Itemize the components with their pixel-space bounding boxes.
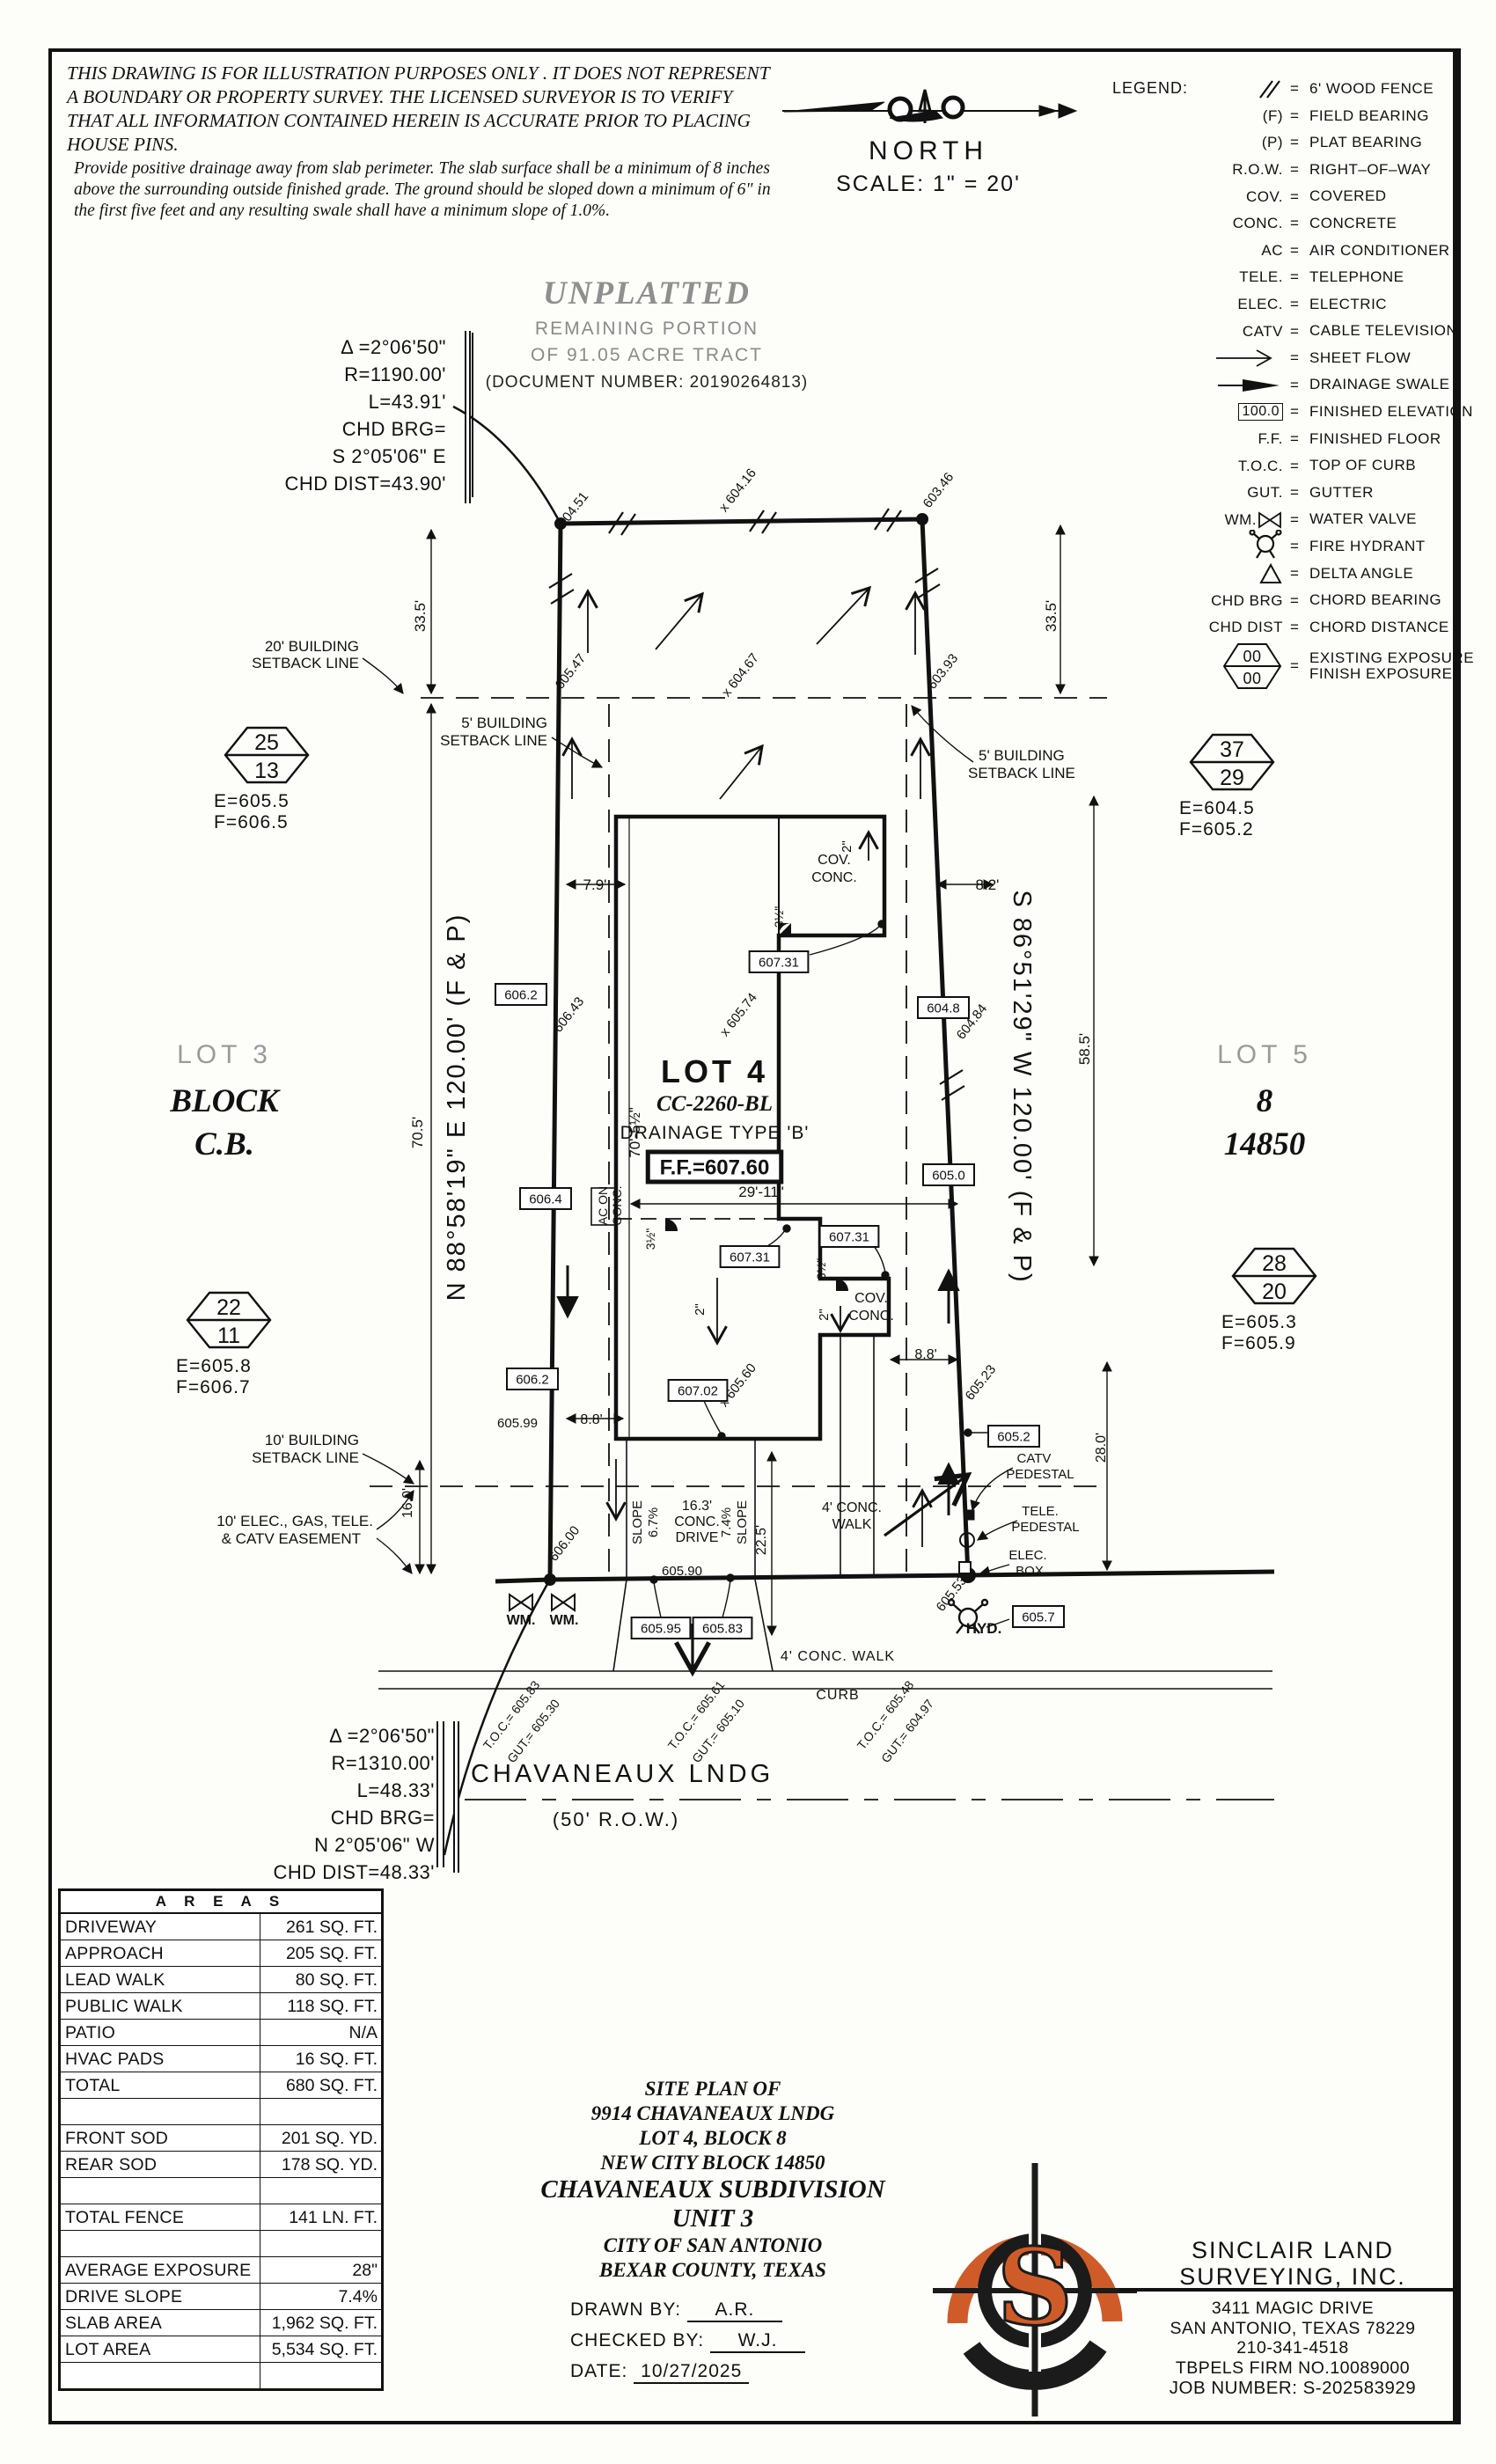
equals-sign: = xyxy=(1290,592,1309,610)
finish-elevation: F=606.5 xyxy=(214,812,328,833)
unplatted-title: UNPLATTED xyxy=(480,275,814,312)
legend-row: ELEC.=ELECTRIC xyxy=(1192,291,1457,319)
plan-label: 28.0' xyxy=(1094,1433,1109,1463)
svg-text:606.2: 606.2 xyxy=(516,1372,549,1387)
equals-sign: = xyxy=(1290,268,1309,286)
plan-label: COV. xyxy=(854,1291,888,1306)
areas-row-label: SLAB AREA xyxy=(61,2310,260,2336)
title-block-line: UNIT 3 xyxy=(519,2204,906,2233)
plan-label: 20' BUILDING xyxy=(265,638,359,655)
legend-label: DRAINAGE SWALE xyxy=(1309,377,1449,393)
sinclair-logo-icon: S xyxy=(933,2161,1137,2418)
drainage-swale-arrow-icon xyxy=(1192,375,1290,396)
unplatted-tract-label: UNPLATTED REMAINING PORTION OF 91.05 ACR… xyxy=(480,275,814,392)
legend-row: AC=AIR CONDITIONER xyxy=(1192,238,1457,265)
legend-row: =DELTA ANGLE xyxy=(1192,561,1457,588)
lead-walk-edges xyxy=(840,1335,874,1574)
plan-label: 3½" xyxy=(814,1258,828,1280)
legend-symbol: CHD BRG xyxy=(1192,592,1290,610)
legend-row: 100.0=FINISHED ELEVATION xyxy=(1192,399,1457,426)
plan-label: 3½" xyxy=(772,906,786,928)
plan-label: SETBACK LINE xyxy=(252,655,359,671)
legend-symbol: (P) xyxy=(1192,134,1290,151)
areas-row-value xyxy=(260,2178,381,2204)
legend-label: FINISHED ELEVATION xyxy=(1309,404,1473,421)
areas-row-value xyxy=(260,2231,381,2256)
legend-label: FINISHED FLOOR xyxy=(1309,431,1441,448)
legend-label: GUTTER xyxy=(1309,485,1374,502)
svg-text:606.2: 606.2 xyxy=(504,987,538,1002)
legend-row: F.F.=FINISHED FLOOR xyxy=(1192,426,1457,453)
areas-row-label: AVERAGE EXPOSURE xyxy=(61,2257,260,2283)
scale-label: SCALE: 1" = 20' xyxy=(774,172,1082,197)
plan-label: 7.9' xyxy=(583,876,607,893)
areas-row-label: LEAD WALK xyxy=(61,1967,260,1992)
plan-label: BOX xyxy=(1016,1564,1044,1579)
plan-label: 2" xyxy=(693,1303,708,1316)
legend-label: CABLE TELEVISION xyxy=(1309,323,1457,340)
legend-label: WATER VALVE xyxy=(1309,511,1417,528)
areas-row-value: 7.4% xyxy=(260,2284,381,2309)
svg-text:605.7: 605.7 xyxy=(1022,1610,1055,1624)
legend-row: =FIRE HYDRANT xyxy=(1192,533,1457,561)
areas-row-label: PATIO xyxy=(61,2020,260,2045)
svg-text:29: 29 xyxy=(1220,766,1244,790)
svg-text:28: 28 xyxy=(1262,1251,1287,1276)
areas-table: A R E A S DRIVEWAY261 SQ. FT.APPROACH205… xyxy=(58,1888,384,2391)
plan-label: SLOPE xyxy=(735,1500,750,1544)
lot-boundary xyxy=(550,519,968,1580)
plan-label: WALK xyxy=(832,1517,872,1532)
unplatted-document-number: (DOCUMENT NUMBER: 20190264813) xyxy=(480,373,814,392)
curve-data-line: L=43.91' xyxy=(260,391,446,418)
existing-elevation: E=605.8 xyxy=(176,1356,290,1377)
equals-sign: = xyxy=(1290,403,1309,421)
legend-label: ELECTRIC xyxy=(1309,297,1387,313)
equals-sign: = xyxy=(1290,377,1309,394)
finished-elevation-box: 607.02 xyxy=(669,1380,728,1401)
equals-sign: = xyxy=(1290,430,1309,448)
legend-symbol: R.O.W. xyxy=(1192,161,1290,179)
unplatted-line2: REMAINING PORTION xyxy=(480,319,814,340)
plan-label: 603.46 xyxy=(920,470,957,511)
areas-table-row: APPROACH205 SQ. FT. xyxy=(61,1940,381,1967)
disclaimer-paragraph-1: THIS DRAWING IS FOR ILLUSTRATION PURPOSE… xyxy=(67,62,771,157)
curve-data-line: R=1190.00' xyxy=(260,363,446,391)
areas-table-row xyxy=(61,2178,381,2204)
plan-label: 4' CONC. WALK xyxy=(781,1649,895,1664)
curve-data-line: S 2°05'06" E xyxy=(260,445,446,473)
areas-row-label xyxy=(61,2231,260,2256)
finished-elevation-box: 607.31 xyxy=(721,1246,780,1267)
street-label: CHAVANEAUX LNDG (50' R.O.W.) xyxy=(471,1760,761,1831)
plan-label: CONC. xyxy=(848,1309,894,1324)
areas-row-value: 28" xyxy=(260,2257,381,2283)
plan-label: 5' BUILDING xyxy=(461,715,547,731)
curve-data-line: Δ =2°06'50" xyxy=(248,1725,435,1752)
plan-label: PEDESTAL xyxy=(1006,1467,1074,1482)
legend-label: 6' WOOD FENCE xyxy=(1309,81,1434,98)
logo-letter-s: S xyxy=(997,2226,1074,2350)
curve-data-line: L=48.33' xyxy=(248,1779,435,1807)
title-block-line: BEXAR COUNTY, TEXAS xyxy=(519,2258,906,2283)
curve-data-bottom: Δ =2°06'50"R=1310.00'L=48.33'CHD BRG=N 2… xyxy=(248,1725,435,1888)
svg-text:607.31: 607.31 xyxy=(829,1229,869,1244)
legend-label: EXISTING EXPOSUREFINISH EXPOSURE xyxy=(1309,650,1474,683)
areas-row-value: N/A xyxy=(260,2020,381,2045)
plan-label: 33.5' xyxy=(412,600,429,632)
plan-label: SETBACK LINE xyxy=(252,1449,359,1466)
plan-label: CURB xyxy=(816,1688,859,1703)
legend-label: TOP OF CURB xyxy=(1309,458,1416,474)
exposure-hexagon-icon: 2820 xyxy=(1228,1244,1320,1308)
areas-row-value: 178 SQ. YD. xyxy=(260,2152,381,2177)
plan-label: LOT 4 xyxy=(661,1053,768,1089)
legend-symbol: CONC. xyxy=(1192,215,1290,232)
match-line xyxy=(465,331,471,503)
legend-label: FIELD BEARING xyxy=(1309,108,1429,125)
sheet-flow-arrow-icon xyxy=(1192,348,1290,369)
areas-table-row: PATION/A xyxy=(61,2020,381,2046)
equals-sign: = xyxy=(1290,107,1309,125)
legend-label: SHEET FLOW xyxy=(1309,350,1411,367)
svg-text:20: 20 xyxy=(1262,1280,1287,1304)
legend-row: CHD DIST=CHORD DISTANCE xyxy=(1192,614,1457,642)
finished-elevation-box: 607.31 xyxy=(820,1226,879,1247)
svg-text:605.0: 605.0 xyxy=(932,1168,965,1183)
areas-row-value: 1,962 SQ. FT. xyxy=(260,2310,381,2336)
areas-row-label: REAR SOD xyxy=(61,2152,260,2177)
plan-label: 7.4% xyxy=(719,1507,734,1537)
company-name-line2: SURVEYING, INC. xyxy=(1131,2263,1455,2290)
areas-row-label: FRONT SOD xyxy=(61,2125,260,2151)
plan-annotations: 20' BUILDINGSETBACK LINE5' BUILDINGSETBA… xyxy=(216,466,1109,1765)
finished-elevation-box: 607.31 xyxy=(750,951,809,972)
company-address-line2: SAN ANTONIO, TEXAS 78229 xyxy=(1131,2319,1455,2339)
plan-label: x 604.67 xyxy=(719,650,762,700)
plan-label: 16.3' xyxy=(682,1499,712,1514)
areas-row-value xyxy=(260,2363,381,2388)
svg-text:607.31: 607.31 xyxy=(759,955,799,970)
plan-label: WM. xyxy=(507,1613,536,1628)
areas-row-value: 118 SQ. FT. xyxy=(260,1993,381,2019)
areas-row-label xyxy=(61,2178,260,2204)
plan-label: 22.5' xyxy=(754,1525,769,1555)
legend-row: TELE.=TELEPHONE xyxy=(1192,264,1457,291)
plan-label: COV. xyxy=(818,853,851,868)
plan-label: 29'-11" xyxy=(738,1184,784,1200)
areas-table-title: A R E A S xyxy=(61,1891,381,1914)
areas-row-label: TOTAL FENCE xyxy=(61,2204,260,2230)
legend-symbol: CATV xyxy=(1192,323,1290,341)
legend-row: R.O.W.=RIGHT–OF–WAY xyxy=(1192,157,1457,184)
exposure-marker: 2820E=605.3F=605.9 xyxy=(1213,1244,1336,1354)
title-block-line: CHAVANEAUX SUBDIVISION xyxy=(519,2175,906,2204)
plan-label: SETBACK LINE xyxy=(968,765,1075,781)
areas-table-row xyxy=(61,2099,381,2125)
areas-table-row: SLAB AREA1,962 SQ. FT. xyxy=(61,2310,381,2336)
plan-label: 58.5' xyxy=(1076,1033,1093,1065)
equals-sign: = xyxy=(1290,134,1309,151)
plan-label: CONC. xyxy=(610,1185,624,1225)
areas-row-value: 205 SQ. FT. xyxy=(260,1940,381,1966)
legend-row: (P)=PLAT BEARING xyxy=(1192,129,1457,157)
water-valve-icon: WM. xyxy=(1192,510,1290,530)
curve-data-line: CHD DIST=43.90' xyxy=(260,473,446,500)
finished-elevation-box-icon: 100.0 xyxy=(1192,403,1290,421)
areas-table-row: TOTAL FENCE141 LN. FT. xyxy=(61,2204,381,2231)
legend-row: CONC.=CONCRETE xyxy=(1192,210,1457,238)
legend-row: GUT.=GUTTER xyxy=(1192,480,1457,507)
curve-data-line: Δ =2°06'50" xyxy=(260,336,446,363)
company-name-line1: SINCLAIR LAND xyxy=(1131,2237,1455,2263)
svg-text:00: 00 xyxy=(1243,648,1261,665)
svg-text:607.31: 607.31 xyxy=(730,1250,770,1265)
finished-elevation-box: 605.0 xyxy=(923,1164,974,1185)
plan-label: 33.5' xyxy=(1043,600,1060,632)
areas-row-value: 16 SQ. FT. xyxy=(260,2046,381,2072)
legend-row: CATV=CABLE TELEVISION xyxy=(1192,318,1457,345)
equals-sign: = xyxy=(1290,323,1309,341)
plan-label: N 88°58'19" E 120.00' (F & P) xyxy=(443,913,471,1302)
legend-symbol: COV. xyxy=(1192,188,1290,206)
legend-label: DELTA ANGLE xyxy=(1309,566,1413,583)
plan-label: S 86°51'29" W 120.00' (F & P) xyxy=(1008,890,1036,1283)
legend: LEGEND: =6' WOOD FENCE(F)=FIELD BEARING(… xyxy=(1114,76,1457,692)
plan-label: 10' BUILDING xyxy=(265,1432,359,1448)
plan-label: WM. xyxy=(550,1613,579,1628)
exposure-marker: 2513E=605.5F=606.5 xyxy=(205,723,328,833)
match-line xyxy=(453,1721,459,1873)
checked-by-label: CHECKED BY: xyxy=(570,2330,704,2350)
legend-label: AIR CONDITIONER xyxy=(1309,243,1450,260)
finished-elevation-box: 605.2 xyxy=(988,1426,1039,1447)
plan-label: CONC. xyxy=(674,1514,720,1529)
legend-row: =SHEET FLOW xyxy=(1192,345,1457,372)
legend-row: =6' WOOD FENCE xyxy=(1192,76,1457,103)
curve-data-line: CHD BRG= xyxy=(248,1807,435,1834)
legend-label: COVERED xyxy=(1309,188,1387,205)
finished-elevation-box: 604.8 xyxy=(918,997,969,1018)
areas-table-row: PUBLIC WALK118 SQ. FT. xyxy=(61,1993,381,2020)
finish-elevation: F=605.9 xyxy=(1221,1333,1336,1354)
plan-label: DRAINAGE TYPE 'B' xyxy=(620,1123,810,1143)
cb-label: C.B. xyxy=(141,1126,308,1163)
legend-symbol: T.O.C. xyxy=(1192,458,1290,475)
areas-row-value: 80 SQ. FT. xyxy=(260,1967,381,1992)
street-name: CHAVANEAUX LNDG xyxy=(471,1760,761,1789)
equals-sign: = xyxy=(1290,538,1309,555)
company-firm-number: TBPELS FIRM NO.10089000 xyxy=(1131,2358,1455,2379)
finished-elevation-box: 605.7 xyxy=(1013,1606,1064,1627)
legend-symbol: F.F. xyxy=(1192,430,1290,448)
site-plan-sheet: 20' BUILDINGSETBACK LINE5' BUILDINGSETBA… xyxy=(0,0,1496,2464)
equals-sign: = xyxy=(1290,296,1309,313)
legend-label: CHORD BEARING xyxy=(1309,592,1441,609)
areas-table-row: LOT AREA5,534 SQ. FT. xyxy=(61,2336,381,2363)
svg-text:604.8: 604.8 xyxy=(927,1001,960,1016)
legend-symbol: GUT. xyxy=(1192,484,1290,502)
equals-sign: = xyxy=(1290,484,1309,502)
legend-row: =DRAINAGE SWALE xyxy=(1192,372,1457,400)
equals-sign: = xyxy=(1290,619,1309,636)
areas-table-row: FRONT SOD201 SQ. YD. xyxy=(61,2125,381,2152)
legend-symbol: ELEC. xyxy=(1192,296,1290,313)
water-valve-icon xyxy=(510,1595,575,1610)
svg-text:22: 22 xyxy=(216,1295,241,1320)
plan-label: x 605.74 xyxy=(717,990,760,1039)
exposure-hexagon-icon: 0000 xyxy=(1192,641,1290,692)
checked-by-value: W.J. xyxy=(710,2330,805,2353)
north-arrow-block: NORTH SCALE: 1" = 20' xyxy=(774,84,1082,197)
areas-table-row: REAR SOD178 SQ. YD. xyxy=(61,2152,381,2178)
svg-text:11: 11 xyxy=(217,1324,240,1348)
exposure-hexagon-icon: 3729 xyxy=(1186,730,1278,794)
plan-label: SLOPE xyxy=(630,1500,645,1544)
existing-elevation: E=605.5 xyxy=(214,791,328,812)
exposure-marker: 3729E=604.5F=605.2 xyxy=(1170,730,1294,840)
equals-sign: = xyxy=(1290,565,1309,583)
exposure-marker: 2211E=605.8F=606.7 xyxy=(167,1288,290,1398)
title-block-line: SITE PLAN OF xyxy=(519,2077,906,2101)
equals-sign: = xyxy=(1290,657,1309,675)
plan-label: 10' ELEC., GAS, TELE. xyxy=(216,1513,373,1529)
finished-floor-box: F.F.=607.60 xyxy=(648,1152,781,1182)
plan-label: 2" xyxy=(817,1309,832,1321)
curve-data-line: N 2°05'06" W xyxy=(248,1834,435,1861)
plan-label: x 604.16 xyxy=(716,466,759,515)
plan-label: 70'-5½" xyxy=(627,1107,643,1157)
legend-row: T.O.C.=TOP OF CURB xyxy=(1192,452,1457,480)
areas-row-label: HVAC PADS xyxy=(61,2046,260,2072)
svg-text:25: 25 xyxy=(254,730,279,755)
plan-label: SETBACK LINE xyxy=(440,732,547,749)
areas-row-label xyxy=(61,2099,260,2124)
lot3-label: LOT 3 xyxy=(141,1040,308,1070)
equals-sign: = xyxy=(1290,215,1309,232)
svg-text:13: 13 xyxy=(254,759,279,783)
plan-label: 6.7% xyxy=(646,1507,661,1537)
areas-row-value: 201 SQ. YD. xyxy=(260,2125,381,2151)
ncb-label: 14850 xyxy=(1181,1126,1348,1163)
existing-elevation: E=605.3 xyxy=(1221,1312,1336,1333)
plan-label: 4' CONC. xyxy=(822,1500,882,1515)
adjacent-lot-3: LOT 3 BLOCK C.B. xyxy=(141,1040,308,1163)
disclaimer-note: THIS DRAWING IS FOR ILLUSTRATION PURPOSE… xyxy=(67,62,771,222)
areas-table-row: TOTAL680 SQ. FT. xyxy=(61,2072,381,2099)
areas-table-row: HVAC PADS16 SQ. FT. xyxy=(61,2046,381,2072)
north-compass-icon xyxy=(779,84,1078,130)
block-label: BLOCK xyxy=(141,1082,308,1120)
plan-label: 70.5' xyxy=(409,1117,426,1148)
plan-label: AC ON xyxy=(596,1186,610,1225)
public-walk xyxy=(378,1671,1272,1689)
areas-row-label: DRIVE SLOPE xyxy=(61,2284,260,2309)
drawn-by-value: A.R. xyxy=(687,2299,782,2322)
title-block-line: 9914 CHAVANEAUX LNDG xyxy=(519,2101,906,2126)
areas-row-label: APPROACH xyxy=(61,1940,260,1966)
title-block: SITE PLAN OF9914 CHAVANEAUX LNDGLOT 4, B… xyxy=(519,2077,906,2283)
legend-label: TELEPHONE xyxy=(1309,269,1404,286)
plan-label: 8.8' xyxy=(580,1412,602,1427)
plan-label: PEDESTAL xyxy=(1011,1520,1079,1535)
finish-elevation: F=606.7 xyxy=(176,1377,290,1398)
plan-label: 605.99 xyxy=(497,1416,538,1431)
exposure-hexagon-icon: 2211 xyxy=(183,1288,275,1352)
areas-table-row: DRIVEWAY261 SQ. FT. xyxy=(61,1914,381,1940)
job-number: JOB NUMBER: S-202583929 xyxy=(1131,2379,1455,2399)
plan-label: CC-2260-BL xyxy=(656,1092,773,1116)
legend-title: LEGEND: xyxy=(1112,79,1188,98)
plan-label: 16.0' xyxy=(400,1488,415,1518)
plan-label: 605.23 xyxy=(963,1362,1000,1404)
disclaimer-paragraph-2: Provide positive drainage away from slab… xyxy=(67,158,771,223)
plan-label: CATV xyxy=(1017,1451,1052,1466)
legend-label: FIRE HYDRANT xyxy=(1309,539,1426,555)
north-label: NORTH xyxy=(774,136,1082,166)
areas-row-label: TOTAL xyxy=(61,2072,260,2098)
equals-sign: = xyxy=(1290,349,1309,367)
company-phone: 210-341-4518 xyxy=(1131,2338,1455,2358)
equals-sign: = xyxy=(1290,458,1309,475)
svg-text:607.02: 607.02 xyxy=(678,1383,718,1398)
wood-fence-icon xyxy=(1192,78,1290,99)
areas-row-label xyxy=(61,2363,260,2388)
finished-elevation-box: 606.2 xyxy=(495,984,546,1005)
date-label: DATE: xyxy=(570,2361,627,2381)
areas-table-row: AVERAGE EXPOSURE28" xyxy=(61,2257,381,2284)
legend-label: CHORD DISTANCE xyxy=(1309,620,1449,636)
equals-sign: = xyxy=(1290,161,1309,179)
legend-label: RIGHT–OF–WAY xyxy=(1309,162,1431,179)
areas-row-label: LOT AREA xyxy=(61,2336,260,2362)
areas-table-row xyxy=(61,2363,381,2388)
areas-row-value: 5,534 SQ. FT. xyxy=(260,2336,381,2362)
svg-text:605.83: 605.83 xyxy=(702,1621,743,1636)
title-block-line: CITY OF SAN ANTONIO xyxy=(519,2233,906,2258)
unplatted-line3: OF 91.05 ACRE TRACT xyxy=(480,345,814,366)
legend-symbol: (F) xyxy=(1192,107,1290,125)
svg-text:606.4: 606.4 xyxy=(529,1192,562,1206)
areas-table-row xyxy=(61,2231,381,2257)
plan-label: 605.90 xyxy=(662,1564,702,1579)
legend-row: COV.=COVERED xyxy=(1192,183,1457,210)
areas-row-value: 261 SQ. FT. xyxy=(260,1914,381,1940)
areas-row-label: DRIVEWAY xyxy=(61,1914,260,1940)
date-value: 10/27/2025 xyxy=(634,2361,749,2384)
plan-label: HYD. xyxy=(966,1620,1002,1637)
street-row-width: (50' R.O.W.) xyxy=(471,1808,761,1831)
svg-text:37: 37 xyxy=(1220,737,1244,762)
company-address-block: 3411 MAGIC DRIVE SAN ANTONIO, TEXAS 7822… xyxy=(1131,2299,1455,2399)
svg-text:F.F.=607.60: F.F.=607.60 xyxy=(660,1155,770,1179)
plan-label: 3½" xyxy=(643,1228,657,1250)
block8-label: 8 xyxy=(1181,1082,1348,1120)
plan-label: DRIVE xyxy=(676,1530,719,1545)
legend-row: CHD BRG=CHORD BEARING xyxy=(1192,587,1457,614)
curve-data-line: R=1310.00' xyxy=(248,1752,435,1779)
legend-label: PLAT BEARING xyxy=(1309,135,1422,151)
areas-row-value: 680 SQ. FT. xyxy=(260,2072,381,2098)
equals-sign: = xyxy=(1290,188,1309,206)
plan-label: 5' BUILDING xyxy=(979,747,1065,764)
company-divider-rule xyxy=(1119,2288,1455,2292)
finish-elevation: F=605.2 xyxy=(1179,819,1294,840)
curve-data-line: CHD DIST=48.33' xyxy=(248,1861,435,1888)
equals-sign: = xyxy=(1290,80,1309,98)
areas-row-value: 141 LN. FT. xyxy=(260,2204,381,2230)
finished-elevation-box: 606.4 xyxy=(520,1188,571,1209)
